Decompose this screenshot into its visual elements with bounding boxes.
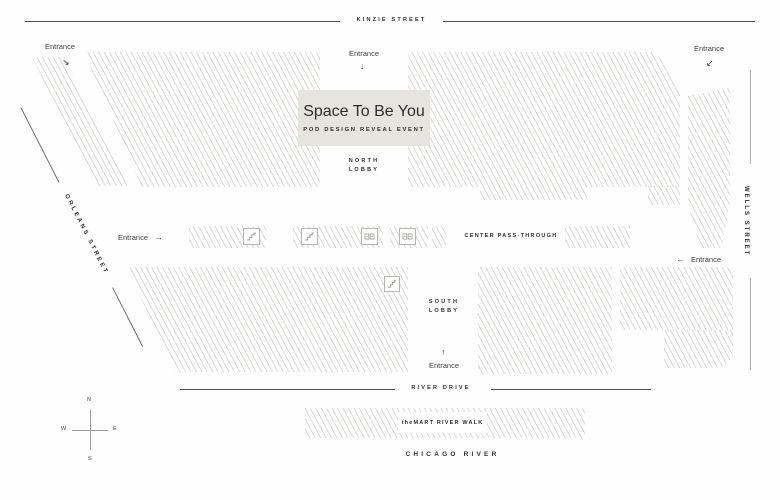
entrance-west: Entrance → <box>118 233 163 242</box>
south-lobby-label: SOUTH LOBBY <box>414 298 474 317</box>
event-subtitle: POD DESIGN REVEAL EVENT <box>303 127 424 133</box>
entrance-north-label: Entrance <box>336 49 392 58</box>
north-lobby-line1: NORTH <box>334 157 394 166</box>
building-east-block-lower <box>664 330 733 368</box>
entrance-east-label: Entrance <box>691 255 721 264</box>
stairs-icon <box>243 228 260 245</box>
stairs-icon <box>384 276 400 292</box>
kinzie-street-line-left <box>25 21 340 22</box>
building-north-west-block <box>84 52 320 187</box>
building-north-east-extension <box>480 186 587 200</box>
building-south-east-block <box>478 267 612 374</box>
entrance-south-arrow-icon: ↑ <box>441 348 446 357</box>
chicago-river-label: CHICAGO RIVER <box>380 451 525 458</box>
event-map: KINZIE STREET Space To Be You POD DESIGN… <box>0 0 780 500</box>
center-pass-through-label: CENTER PASS-THROUGH <box>455 232 567 241</box>
wells-street-label: WELLS STREET <box>743 186 749 256</box>
building-north-east-block <box>408 52 680 187</box>
entrance-nw-arrow-icon: ↘ <box>62 58 70 67</box>
band-segment-4 <box>432 226 446 248</box>
entrance-ne-arrow-icon: ↙ <box>706 59 714 68</box>
river-drive-line-left <box>180 389 395 390</box>
south-lobby-line1: SOUTH <box>414 298 474 307</box>
building-east-strip <box>688 88 730 248</box>
kinzie-street-line-right <box>443 21 755 22</box>
building-east-block-upper <box>620 267 733 330</box>
compass-west-label: W <box>61 426 66 432</box>
kinzie-street-label: KINZIE STREET <box>340 17 443 23</box>
wells-street-line-upper <box>750 70 751 164</box>
entrance-east: ← Entrance <box>676 255 721 264</box>
north-lobby-label: NORTH LOBBY <box>334 157 394 176</box>
compass-east-label: E <box>113 426 117 432</box>
wells-street-line-lower <box>750 278 751 370</box>
elevator-icon <box>399 228 416 245</box>
riverwalk-label: theMART RIVER WALK <box>402 420 484 426</box>
compass-horizontal-line <box>72 430 108 431</box>
event-title: Space To Be You <box>303 103 425 121</box>
orleans-street-line-upper <box>21 107 60 182</box>
elevator-icon <box>361 228 378 245</box>
compass-south-label: S <box>88 456 92 462</box>
entrance-west-arrow-icon: → <box>154 233 163 242</box>
event-title-box: Space To Be You POD DESIGN REVEAL EVENT <box>298 90 430 146</box>
orleans-street-label: ORLEANS STREET <box>63 193 109 276</box>
compass-north-label: N <box>87 397 91 403</box>
entrance-north-arrow-icon: ↓ <box>360 62 365 71</box>
south-lobby-line2: LOBBY <box>414 307 474 316</box>
entrance-east-arrow-icon: ← <box>676 255 685 264</box>
band-segment-5 <box>565 226 630 248</box>
entrance-west-label: Entrance <box>118 233 148 242</box>
stairs-icon <box>301 228 318 245</box>
entrance-ne-label: Entrance <box>681 44 737 53</box>
north-lobby-line2: LOBBY <box>334 166 394 175</box>
building-north-east-extension-2 <box>648 186 680 205</box>
entrance-south-label: Entrance <box>416 361 472 370</box>
riverwalk-label-box: theMART RIVER WALK <box>398 412 487 433</box>
building-south-west-block <box>110 267 408 372</box>
orleans-street-line-lower <box>112 287 143 346</box>
river-drive-line-right <box>491 389 651 390</box>
entrance-nw-label: Entrance <box>32 42 88 51</box>
river-drive-label: RIVER DRIVE <box>395 385 487 391</box>
